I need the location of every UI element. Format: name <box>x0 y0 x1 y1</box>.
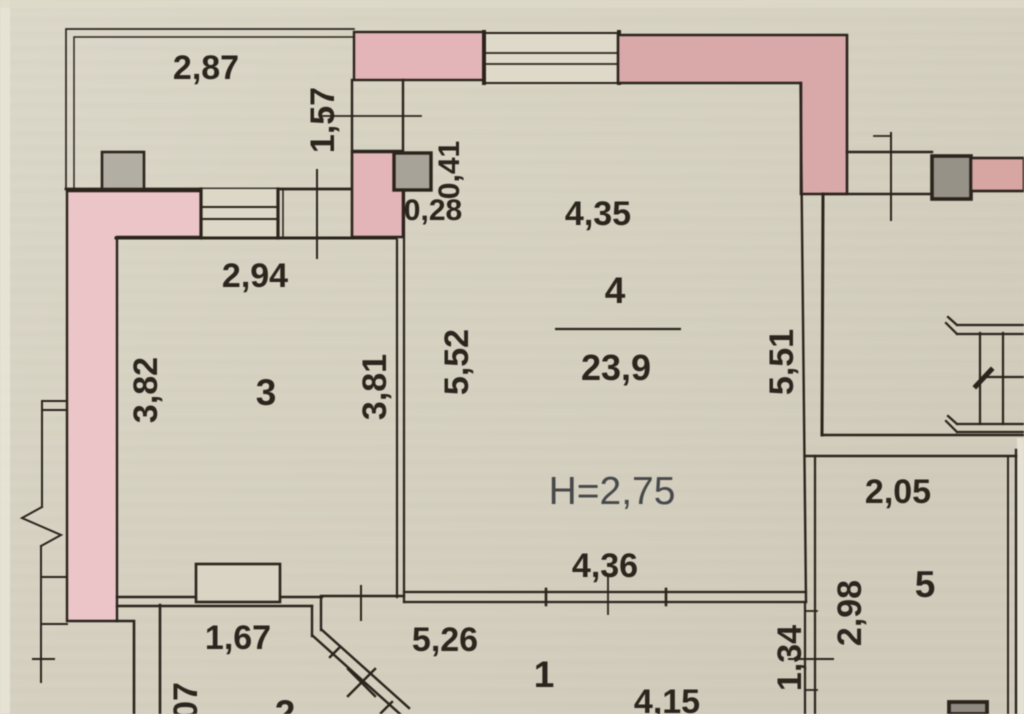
svg-text:07: 07 <box>167 682 205 714</box>
svg-text:5,51: 5,51 <box>763 329 801 395</box>
svg-text:5,52: 5,52 <box>438 329 476 395</box>
svg-text:1,57: 1,57 <box>304 87 342 153</box>
svg-text:3: 3 <box>256 372 277 413</box>
svg-text:4,35: 4,35 <box>565 195 631 233</box>
svg-text:5,26: 5,26 <box>412 621 478 659</box>
svg-text:5: 5 <box>915 564 936 605</box>
svg-text:4,15: 4,15 <box>634 683 700 714</box>
svg-text:0,28: 0,28 <box>404 194 462 227</box>
svg-text:H=2,75: H=2,75 <box>549 470 676 513</box>
svg-text:2,05: 2,05 <box>865 473 931 511</box>
svg-text:1,34: 1,34 <box>771 625 809 691</box>
svg-text:23,9: 23,9 <box>581 347 651 388</box>
svg-text:4: 4 <box>605 270 626 311</box>
svg-text:3,81: 3,81 <box>356 354 394 420</box>
svg-text:2: 2 <box>275 693 296 714</box>
svg-text:1: 1 <box>534 654 555 695</box>
svg-text:0,41: 0,41 <box>433 141 466 199</box>
svg-text:2,87: 2,87 <box>173 49 239 87</box>
svg-text:4,36: 4,36 <box>572 547 638 585</box>
svg-text:1,67: 1,67 <box>205 619 271 657</box>
svg-text:2,98: 2,98 <box>831 580 869 646</box>
svg-text:3,82: 3,82 <box>127 357 165 423</box>
svg-text:2,94: 2,94 <box>222 257 288 295</box>
